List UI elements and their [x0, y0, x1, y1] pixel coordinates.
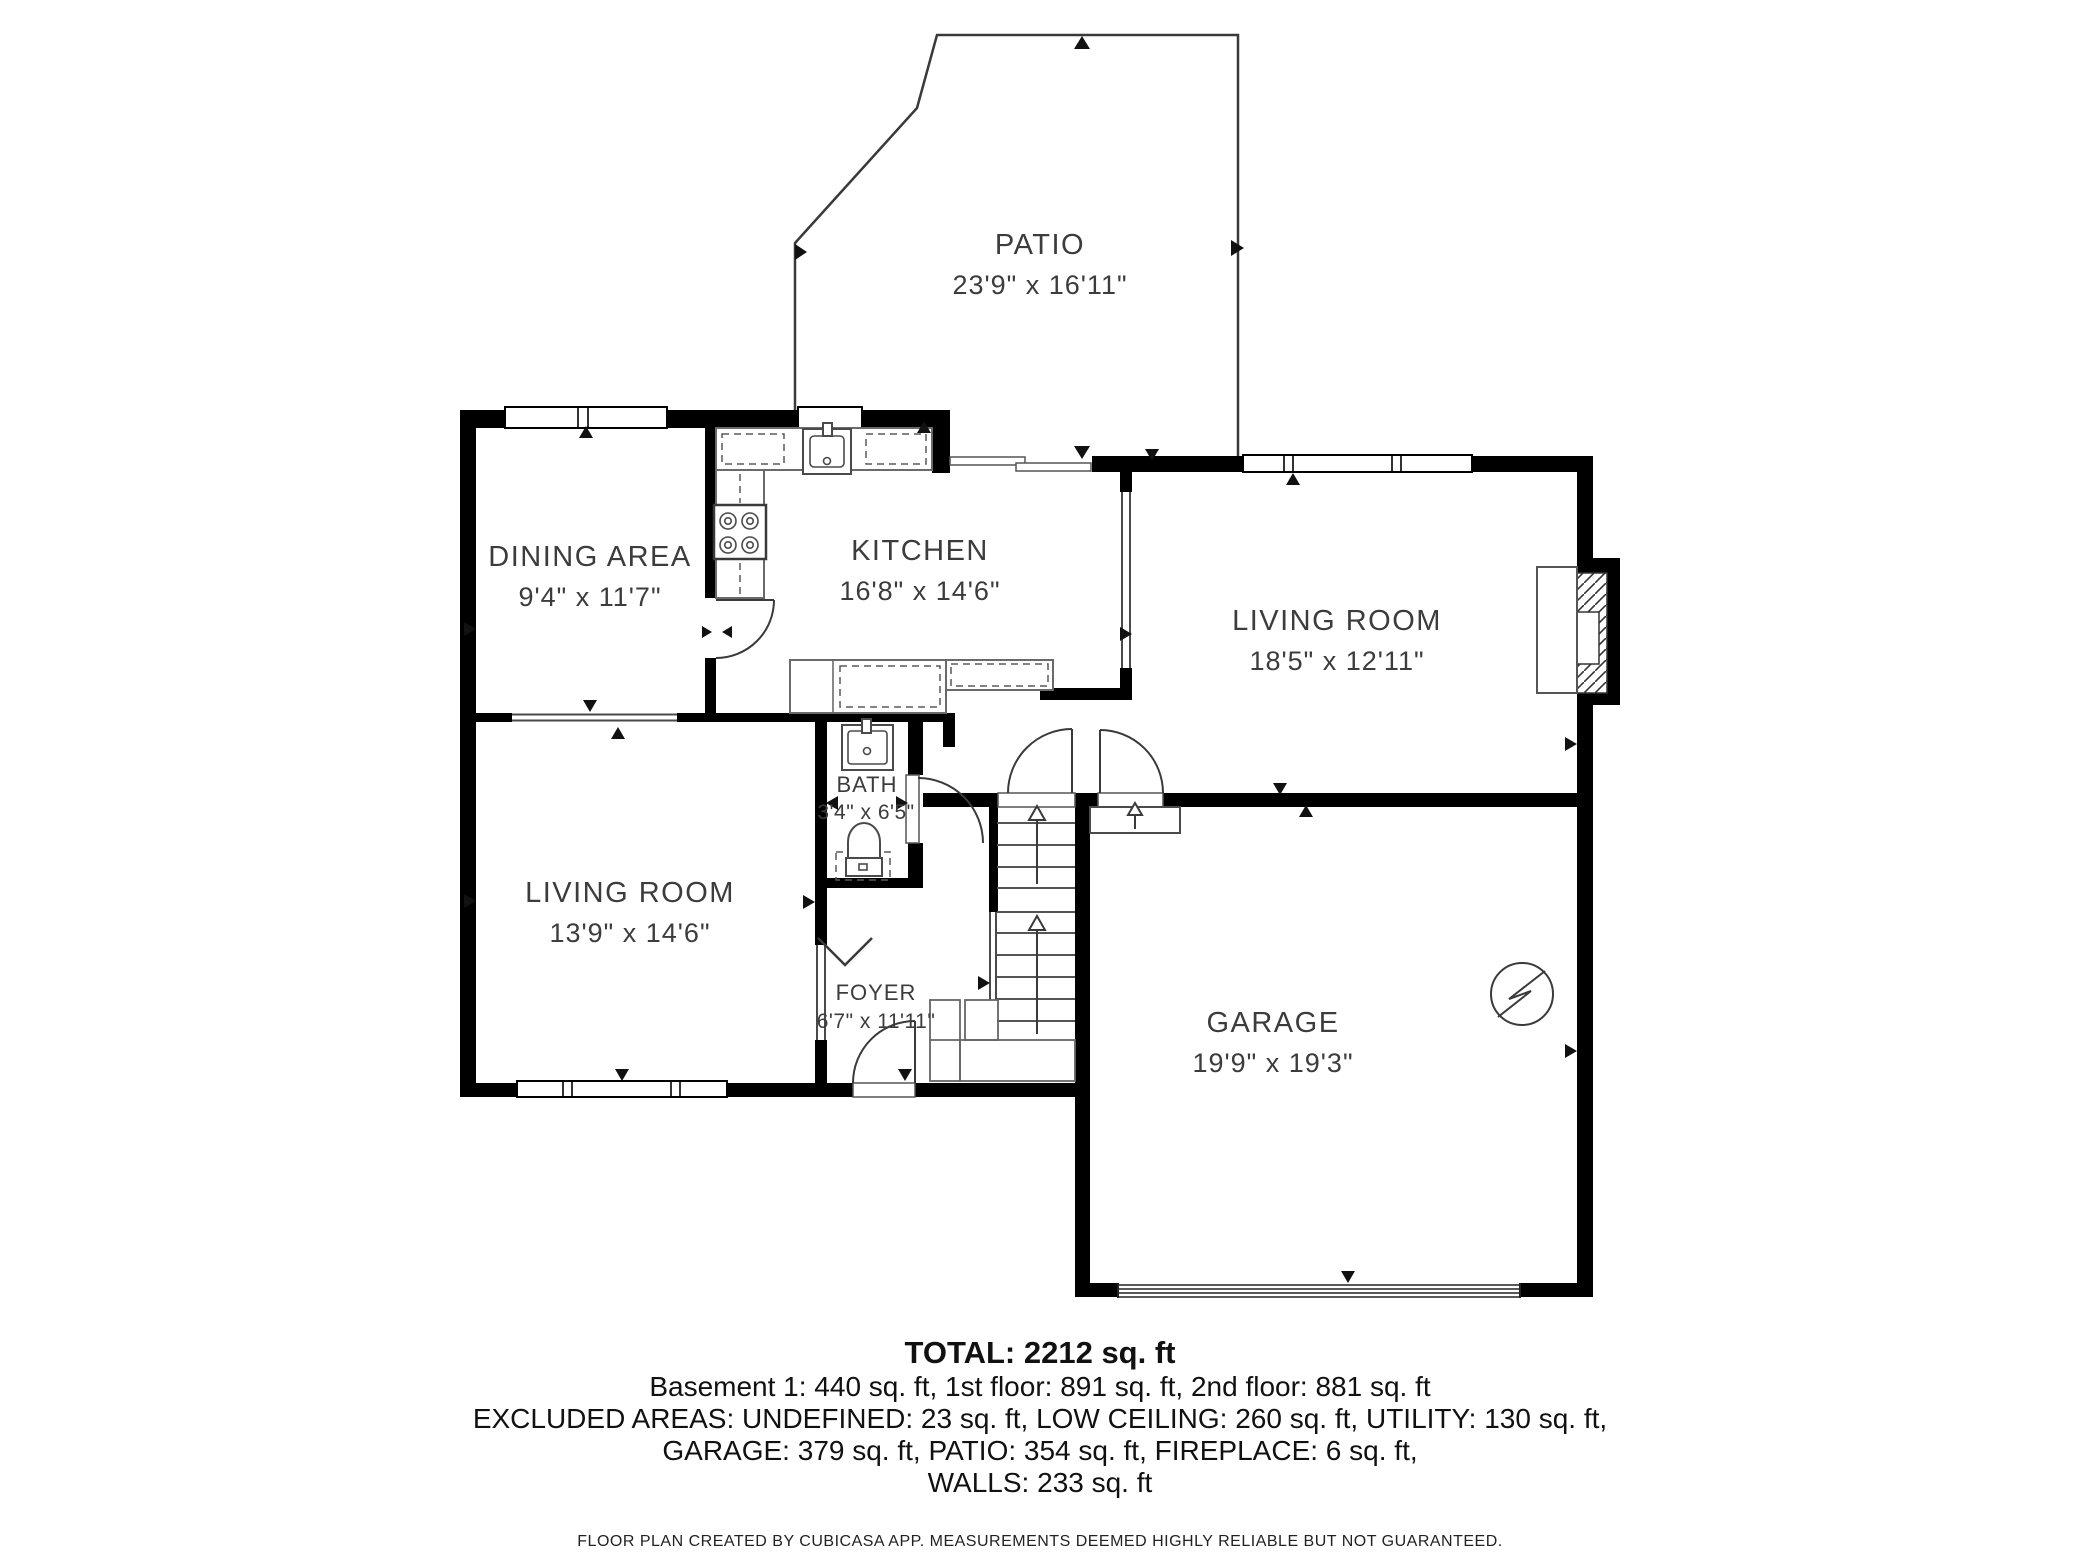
electrical-symbol [1491, 963, 1553, 1025]
living-room-window [1243, 455, 1472, 472]
room-label-living-room-left: LIVING ROOM [525, 877, 735, 909]
summary-floors: Basement 1: 440 sq. ft, 1st floor: 891 s… [649, 1371, 1431, 1402]
room-label-foyer: FOYER [836, 980, 917, 1005]
sink-icon [803, 423, 851, 474]
bath-fixtures [836, 719, 893, 880]
patio-sliding-door [950, 457, 1091, 471]
sink-icon [842, 719, 893, 770]
dining-window [505, 407, 667, 428]
disclaimer-text: FLOOR PLAN CREATED BY CUBICASA APP. MEAS… [577, 1533, 1502, 1550]
floor-plan-page: PATIO 23'9" x 16'11" DINING AREA 9'4" x … [0, 0, 2080, 1560]
stairs-door [998, 729, 1075, 807]
room-dims-kitchen: 16'8" x 14'6" [839, 576, 1000, 606]
room-label-bath: BATH [836, 772, 897, 797]
bath-door [906, 775, 983, 843]
room-label-dining-area: DINING AREA [488, 541, 691, 573]
summary-block: TOTAL: 2212 sq. ft Basement 1: 440 sq. f… [473, 1335, 1607, 1550]
garage-door [1118, 1283, 1520, 1298]
kitchen-fixtures [714, 423, 1053, 713]
stove-icon [714, 505, 766, 559]
summary-garage-patio-fireplace: GARAGE: 379 sq. ft, PATIO: 354 sq. ft, F… [662, 1435, 1417, 1466]
room-dims-living-room-right: 18'5" x 12'11" [1249, 646, 1424, 676]
room-dims-garage: 19'9" x 19'3" [1192, 1048, 1353, 1078]
room-label-living-room-right: LIVING ROOM [1232, 605, 1442, 637]
room-label-kitchen: KITCHEN [851, 535, 989, 567]
room-dims-bath: 3'4" x 6'5" [817, 801, 914, 824]
room-dims-living-room-left: 13'9" x 14'6" [549, 918, 710, 948]
garage-entry-step [1090, 803, 1180, 833]
kitchen-door [716, 600, 774, 658]
summary-walls: WALLS: 233 sq. ft [928, 1467, 1153, 1498]
room-label-garage: GARAGE [1206, 1007, 1339, 1039]
fireplace-icon [1537, 558, 1620, 705]
living-room-left-window [517, 1081, 727, 1097]
floor-plan-canvas: PATIO 23'9" x 16'11" DINING AREA 9'4" x … [0, 0, 2080, 1560]
room-label-patio: PATIO [995, 229, 1085, 261]
garage-entry-door [1098, 730, 1163, 807]
summary-total: TOTAL: 2212 sq. ft [904, 1335, 1175, 1370]
summary-excluded-areas: EXCLUDED AREAS: UNDEFINED: 23 sq. ft, LO… [473, 1403, 1607, 1434]
room-labels: PATIO 23'9" x 16'11" DINING AREA 9'4" x … [488, 229, 1442, 1078]
room-dims-patio: 23'9" x 16'11" [952, 270, 1127, 300]
room-dims-foyer: 6'7" x 11'11" [817, 1010, 936, 1033]
room-dims-dining-area: 9'4" x 11'7" [518, 582, 661, 612]
toilet-icon [836, 823, 890, 880]
windows [505, 407, 1472, 1097]
